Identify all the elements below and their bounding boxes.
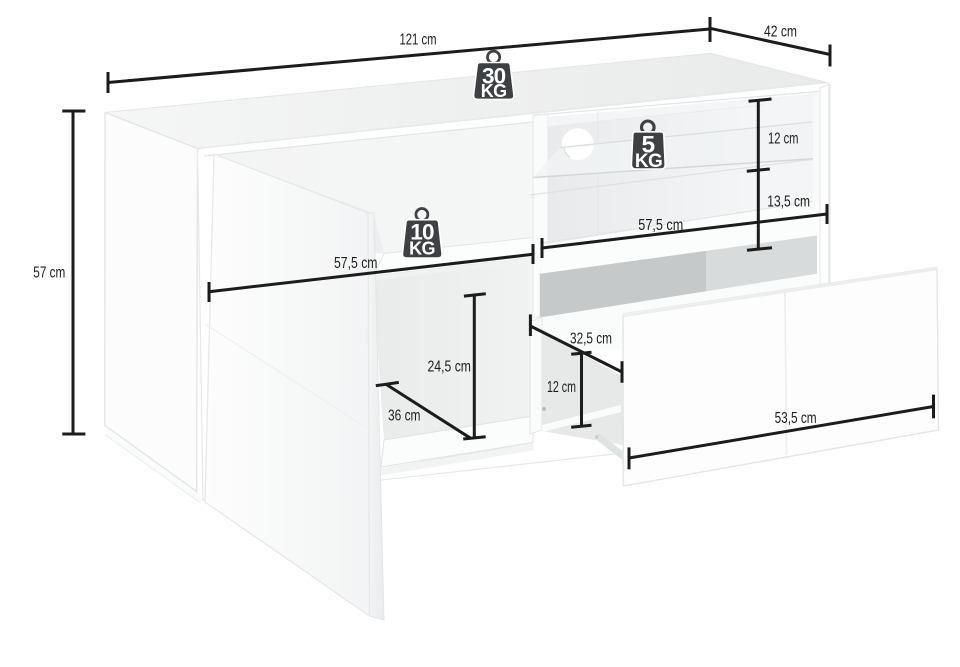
svg-text:57 cm: 57 cm bbox=[33, 265, 65, 282]
svg-text:32,5 cm: 32,5 cm bbox=[570, 331, 612, 348]
svg-text:24,5 cm: 24,5 cm bbox=[428, 359, 472, 376]
svg-text:53,5 cm: 53,5 cm bbox=[775, 410, 817, 427]
svg-text:13,5 cm: 13,5 cm bbox=[767, 194, 810, 211]
svg-text:57,5 cm: 57,5 cm bbox=[334, 255, 378, 272]
svg-text:57,5 cm: 57,5 cm bbox=[638, 217, 683, 234]
svg-text:12 cm: 12 cm bbox=[768, 131, 799, 148]
svg-text:KG: KG bbox=[409, 238, 435, 258]
svg-text:KG: KG bbox=[481, 81, 507, 101]
svg-text:12 cm: 12 cm bbox=[547, 379, 576, 396]
svg-text:KG: KG bbox=[635, 151, 662, 172]
svg-text:36 cm: 36 cm bbox=[388, 408, 421, 425]
svg-text:121 cm: 121 cm bbox=[400, 32, 437, 49]
svg-text:42 cm: 42 cm bbox=[764, 24, 797, 41]
